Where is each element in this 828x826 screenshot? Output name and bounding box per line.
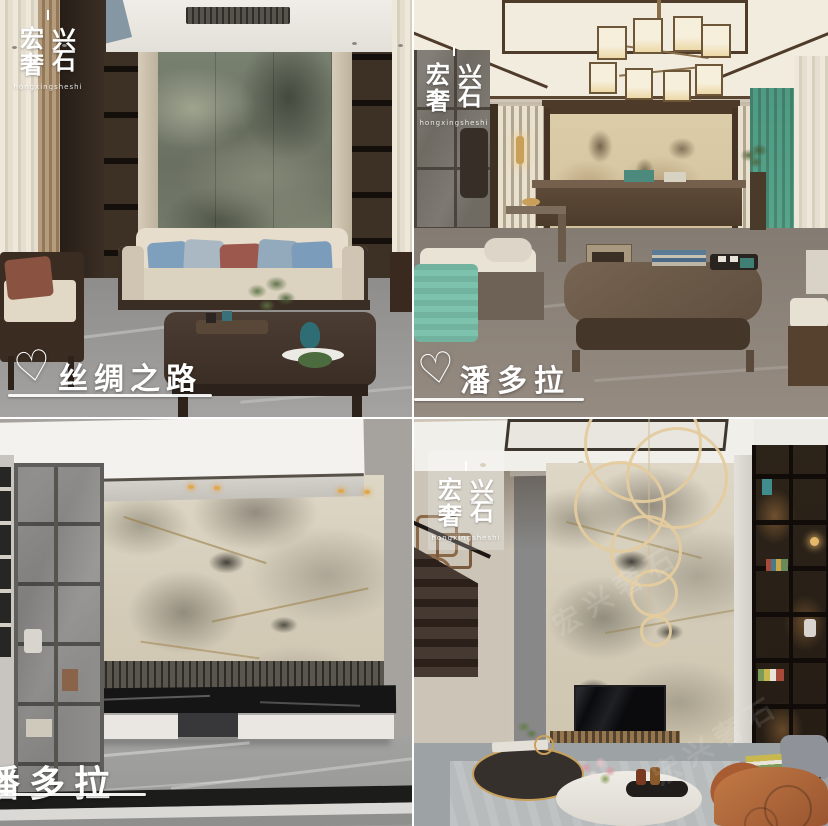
book-stack	[652, 250, 706, 266]
flower-arrangement	[574, 755, 622, 787]
white-drawer	[238, 713, 394, 739]
downlight	[214, 486, 220, 490]
caption-underline	[0, 793, 146, 796]
c-table-leg	[558, 214, 566, 262]
ac-vent	[186, 7, 290, 24]
table-leg	[352, 394, 362, 417]
downlight	[188, 485, 194, 489]
caption: 潘多拉	[460, 356, 571, 400]
plant-pedestal	[750, 172, 766, 230]
brand-char: 奢	[20, 52, 44, 78]
teal-vase	[300, 322, 320, 348]
caption: 丝绸之路	[58, 354, 202, 398]
downlight	[398, 44, 403, 47]
potted-plant	[736, 140, 772, 174]
brand-char: 兴	[458, 63, 482, 89]
armchair-pillow	[4, 256, 54, 301]
lantern-shade	[673, 16, 703, 52]
shelf-books	[758, 669, 784, 681]
shelf-books	[766, 559, 788, 571]
shelf-decor	[24, 629, 42, 653]
gold-bowl	[522, 198, 540, 206]
teal-decor	[740, 258, 754, 268]
lantern-shade	[625, 68, 653, 100]
heart-icon: ♡	[11, 343, 55, 391]
lantern-shade	[589, 62, 617, 94]
brand-pinyin: hongxingsheshi	[10, 83, 86, 91]
side-table	[390, 252, 412, 312]
photo-silk-road-living-room: 宏兴 奢石 hongxingsheshi ♡ 丝绸之路	[0, 0, 412, 417]
coffee-table	[564, 262, 762, 322]
caption: 潘多拉	[0, 755, 119, 807]
brand-watermark: 宏兴 奢石 hongxingsheshi	[416, 46, 492, 127]
lantern-shade	[701, 24, 731, 58]
lantern-shade	[633, 18, 663, 54]
brand-watermark: 宏兴 奢石 hongxingsheshi	[10, 10, 86, 91]
brand-char: 兴	[52, 27, 76, 53]
tea-cup	[222, 311, 232, 321]
chair-silhouette	[460, 128, 488, 198]
sofa-armrest-right	[342, 246, 368, 308]
brand-tick	[47, 10, 49, 20]
shelf-books	[26, 719, 52, 737]
brand-char: 奢	[426, 88, 450, 114]
caption-underline	[8, 394, 212, 397]
heart-icon: ♡	[415, 345, 459, 393]
brand-char: 奢	[438, 503, 462, 529]
teal-throw-blanket	[414, 264, 478, 342]
decor-box	[664, 172, 686, 182]
shelf-lamp	[810, 537, 819, 546]
tea-cup	[718, 256, 726, 262]
downlight	[338, 489, 344, 493]
dark-bookshelf-edge	[0, 467, 11, 657]
tv-console	[536, 188, 742, 226]
shelf-sculpture	[804, 619, 816, 637]
lantern-shade	[663, 70, 691, 102]
coffee-table-shelf	[576, 318, 750, 350]
tea-cup	[730, 256, 738, 262]
table-leg	[746, 350, 754, 372]
slat-shadow	[504, 471, 546, 551]
table-leg	[572, 350, 580, 372]
brand-tick	[453, 46, 455, 56]
chair-frame	[788, 326, 828, 386]
interior-collage: 宏兴 奢石 hongxingsheshi ♡ 丝绸之路	[0, 0, 828, 826]
photo-pandora-living-room: 宏兴 奢石 hongxingsheshi ♡ 潘多拉	[414, 0, 828, 417]
bolster-pillow	[484, 238, 532, 262]
brand-char: 宏	[426, 62, 450, 88]
brand-pinyin: hongxingsheshi	[416, 119, 492, 127]
green-decor	[298, 352, 332, 368]
downlight	[364, 490, 370, 494]
fireplace-insert	[574, 685, 666, 737]
c-table-top	[506, 206, 566, 214]
decor-box	[624, 170, 654, 182]
tea-cup	[206, 313, 216, 323]
downlight	[352, 42, 357, 45]
brand-char: 宏	[20, 26, 44, 52]
lantern-shade	[597, 26, 627, 60]
shelf-decor	[62, 669, 78, 691]
gold-decor-ring	[534, 735, 554, 755]
sofa-armrest-left	[118, 246, 144, 308]
brand-tick	[465, 461, 467, 471]
console-recess	[178, 713, 238, 737]
photo-pandora-double-height-room: 宏兴奢石 宏兴奢石 宏兴 奢石 hongxingsheshi	[414, 419, 828, 826]
lantern-shade	[695, 64, 723, 96]
ring-chandelier	[640, 615, 672, 647]
shelf-vase	[762, 479, 772, 495]
white-side-table	[806, 250, 828, 294]
caption-underline	[414, 398, 584, 401]
brand-watermark: 宏兴 奢石 hongxingsheshi	[428, 451, 504, 550]
photo-pandora-tv-wall-room: 潘多拉	[0, 419, 412, 826]
decor-bottle	[636, 769, 646, 785]
chair-cushion	[790, 298, 828, 328]
brand-char: 兴	[470, 478, 494, 504]
brand-pinyin: hongxingsheshi	[428, 534, 504, 542]
brand-char: 宏	[438, 477, 462, 503]
lantern-chandelier	[589, 0, 729, 120]
wall-sconce	[516, 136, 524, 164]
